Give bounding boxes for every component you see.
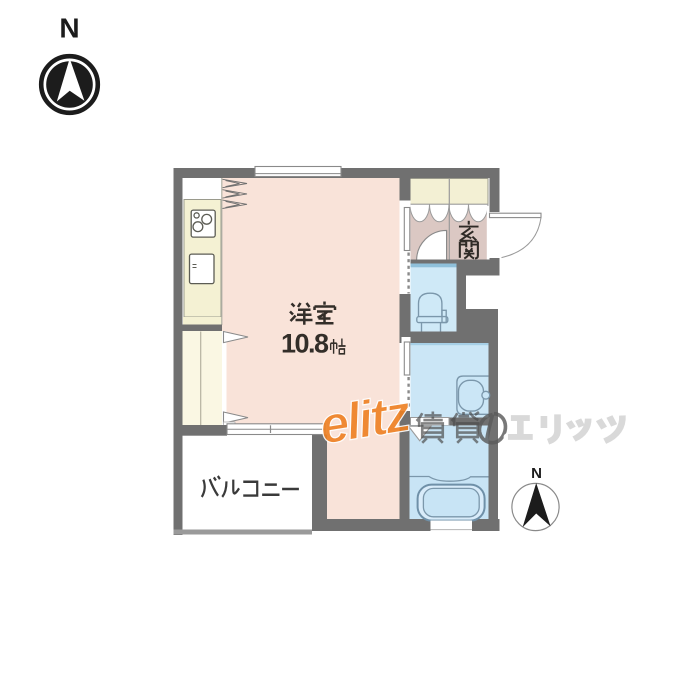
svg-text:N: N — [59, 13, 79, 44]
svg-text:10.8: 10.8 — [281, 329, 329, 359]
svg-text:N: N — [531, 465, 542, 482]
